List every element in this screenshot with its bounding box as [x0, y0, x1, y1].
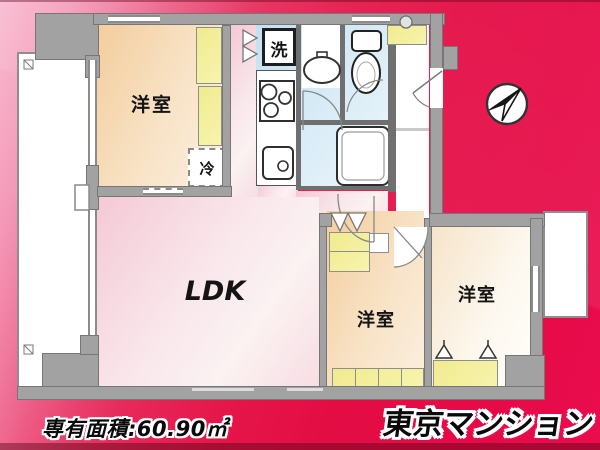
wall-extension-top [429, 213, 545, 227]
genkan-step-line [396, 128, 429, 131]
wall [388, 45, 396, 192]
closet-top-left-lower [198, 86, 222, 146]
washbasin-counter [302, 25, 344, 88]
room-label-bedroom-bottom-left: 洋室 [336, 306, 416, 332]
window-bedroom-right [531, 266, 540, 312]
window-top-bedroom [108, 15, 160, 23]
room-label-ldk: LDK [170, 276, 260, 307]
wall-opening-mark [192, 388, 254, 391]
area-text: 専有面積:60.90㎡ [42, 413, 227, 443]
wall [443, 46, 458, 70]
top-shade [0, 0, 600, 2]
kitchen-floor-strip [258, 185, 298, 197]
closet-shelf-line [330, 251, 369, 252]
window-top-toilet [352, 15, 390, 23]
wall-bottom [17, 386, 545, 400]
wall [35, 13, 99, 60]
wall [319, 226, 327, 390]
wall [319, 213, 332, 227]
shoe-cabinet [387, 25, 427, 45]
stove [259, 80, 295, 122]
brand-logo-text: 東京マンション [355, 399, 597, 443]
sliding-door [143, 188, 183, 195]
kitchen-corridor [231, 25, 258, 197]
entrance-hallway [396, 25, 429, 227]
wall [298, 120, 396, 125]
bottom-shade [0, 443, 600, 450]
wall [296, 25, 301, 190]
floorplan-flyer: 洋室 LDK 洋室 洋室 洗 冷 専有面積:60.90㎡ 東京マンション [0, 0, 600, 450]
window-left-bedroom [88, 60, 97, 165]
window-left-ldk [88, 210, 97, 337]
wall [340, 25, 345, 120]
fridge-label: 冷 [188, 158, 226, 179]
room-label-bedroom-top-left: 洋室 [112, 90, 192, 117]
wall [296, 186, 396, 190]
washer-label: 洗 [262, 36, 296, 61]
closet-top-left-upper [196, 27, 224, 84]
wall [424, 218, 432, 392]
entrance-door-gap [430, 68, 443, 108]
wall-right-upper [430, 13, 443, 225]
bathtub [336, 126, 390, 186]
closet-bottom-left-top [329, 232, 370, 272]
wall [80, 335, 99, 355]
storage-nook [369, 233, 389, 253]
kitchen-sink [262, 146, 294, 180]
wall-opening-mark [287, 388, 323, 391]
balcony-right [543, 211, 588, 318]
room-label-bedroom-right: 洋室 [437, 281, 517, 307]
